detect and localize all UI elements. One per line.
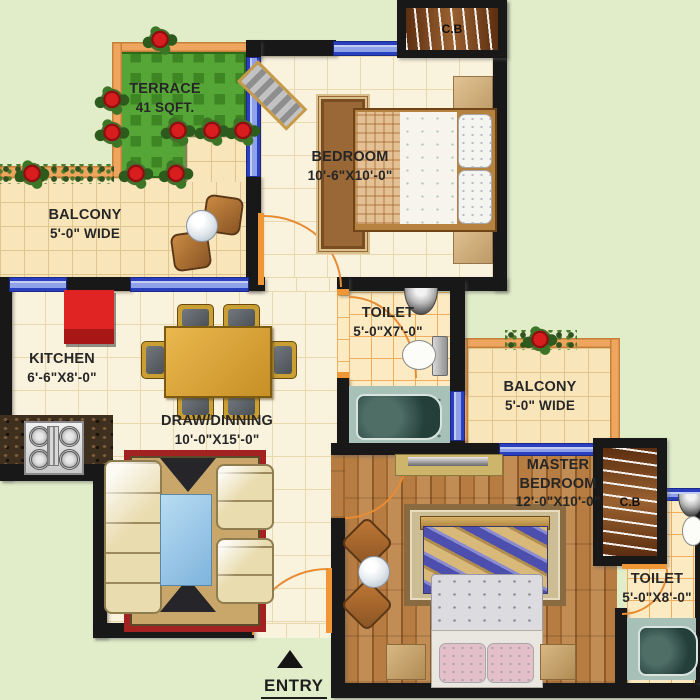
tv-icon — [408, 457, 488, 466]
balcony-right-label: BALCONY 5'-0" WIDE — [482, 378, 598, 414]
room-size: 6'-6"X8'-0" — [10, 369, 114, 386]
terrace-label: TERRACE 41 SQFT. — [112, 80, 218, 116]
room-name: BALCONY — [503, 379, 576, 395]
flower-icon — [160, 116, 196, 146]
flower-icon — [522, 325, 558, 355]
stove-burner-icon — [59, 426, 80, 447]
stove-grill-icon — [47, 426, 59, 466]
sofa-single — [216, 538, 274, 604]
bed-pillow — [458, 114, 492, 168]
wall — [615, 608, 627, 690]
kitchen-label: KITCHEN 6'-6"X8'-0" — [10, 350, 114, 386]
flower-icon — [225, 116, 261, 146]
toilet-top-label: TOILET 5'-0"X7'-0" — [342, 304, 434, 340]
wall — [64, 277, 131, 291]
carpet-medallion — [160, 458, 216, 492]
toilet-bowl — [402, 340, 436, 370]
sofa-three-seater — [104, 460, 162, 614]
floor-plan: C.B C.B — [0, 0, 700, 700]
flower-icon — [142, 25, 178, 55]
room-size: 5'-0" WIDE — [482, 397, 598, 414]
cupboard-top: C.B — [406, 8, 498, 50]
balcony-table — [186, 210, 218, 242]
bed-bench — [540, 644, 576, 680]
cupboard-top-label: C.B — [442, 22, 463, 36]
room-size: 12'-0"X10'-0" — [504, 493, 612, 510]
room-name: TOILET — [362, 305, 415, 321]
center-table — [160, 494, 212, 586]
master-bed-quilt — [431, 574, 543, 636]
toilet-top-door-jamb — [337, 289, 349, 295]
bed-bench — [386, 644, 426, 680]
room-name: BALCONY — [48, 207, 121, 223]
room-name: KITCHEN — [29, 351, 95, 367]
window — [334, 42, 397, 55]
cupboard-right-label: C.B — [620, 495, 641, 509]
toilet-top-door-jamb — [337, 372, 349, 378]
stove-burner-icon — [59, 449, 80, 470]
balcony-right-wall-right — [610, 338, 620, 450]
window — [10, 278, 66, 291]
master-bed-pillow — [439, 643, 486, 683]
toilet-bowl — [682, 516, 700, 546]
room-name: TERRACE — [129, 81, 201, 97]
bed-sheet — [400, 112, 457, 224]
room-name: BEDROOM — [311, 149, 388, 165]
toilet-bottom-label: TOILET 5'-0"X8'-0" — [610, 570, 700, 606]
room-size: 10'-0"X15'-0" — [150, 431, 284, 448]
wall — [450, 280, 465, 394]
window — [131, 278, 248, 291]
flower-icon — [158, 159, 194, 189]
refrigerator — [64, 290, 114, 344]
room-name: MASTER BEDROOM — [519, 457, 596, 492]
entry-label: ENTRY — [261, 676, 327, 699]
bed-pillow — [458, 170, 492, 224]
terrace-wall-top — [112, 42, 252, 52]
wall — [246, 40, 261, 60]
room-name: DRAW/DINNING — [161, 413, 273, 429]
flower-icon — [14, 159, 50, 189]
master-side-table — [358, 556, 390, 588]
bathtub — [638, 626, 698, 676]
flower-icon — [118, 159, 154, 189]
bathtub — [356, 394, 442, 440]
dining-table — [164, 326, 272, 398]
draw-dining-label: DRAW/DINNING 10'-0"X15'-0" — [150, 412, 284, 448]
bedroom-label: BEDROOM 10'-6"X10'-0" — [296, 148, 404, 184]
master-bedroom-label: MASTER BEDROOM 12'-0"X10'-0" — [504, 456, 612, 510]
entry-arrow-icon — [277, 650, 303, 668]
room-name: TOILET — [631, 571, 684, 587]
room-size: 5'-0" WIDE — [30, 225, 140, 242]
master-door-gap-floor — [331, 455, 345, 518]
wall — [337, 378, 349, 452]
room-size: 41 SQFT. — [112, 99, 218, 116]
dining-chair — [269, 341, 297, 379]
window — [451, 392, 464, 440]
flower-icon — [94, 118, 130, 148]
balcony-left-label: BALCONY 5'-0" WIDE — [30, 206, 140, 242]
room-size: 5'-0"X7'-0" — [342, 323, 434, 340]
room-size: 10'-6"X10'-0" — [296, 167, 404, 184]
master-bed-pillow — [487, 643, 534, 683]
sofa-single — [216, 464, 274, 530]
room-size: 5'-0"X8'-0" — [610, 589, 700, 606]
